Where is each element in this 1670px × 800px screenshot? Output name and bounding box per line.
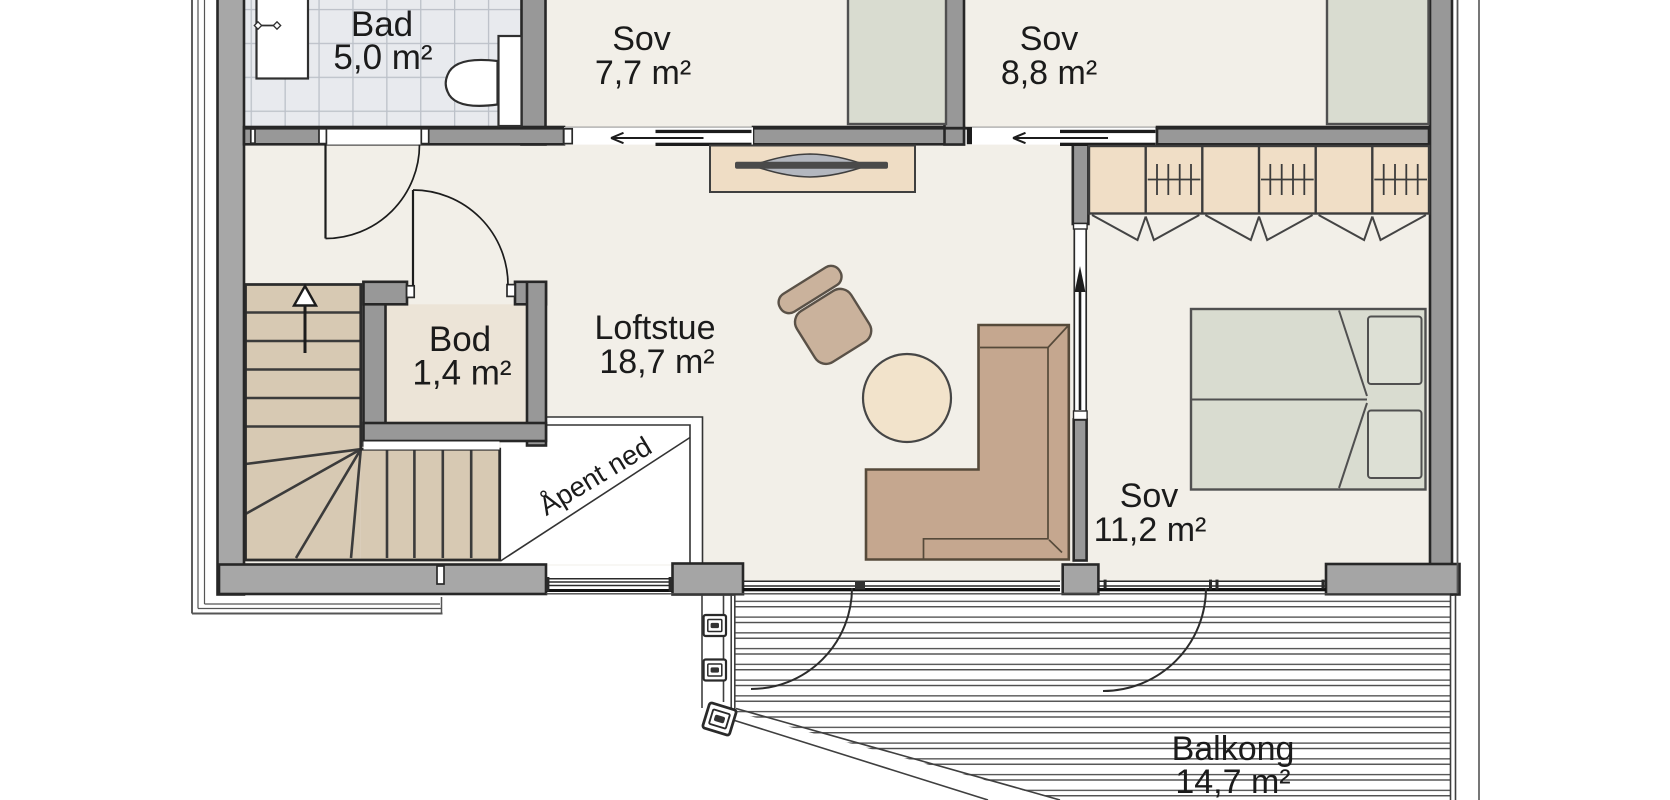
svg-text:7,7 m²: 7,7 m²: [595, 54, 691, 92]
svg-text:8,8 m²: 8,8 m²: [1001, 54, 1097, 92]
svg-text:5,0 m²: 5,0 m²: [333, 38, 432, 77]
svg-text:Sov: Sov: [612, 20, 671, 58]
svg-text:11,2 m²: 11,2 m²: [1094, 511, 1207, 549]
svg-text:Sov: Sov: [1120, 477, 1179, 515]
svg-text:18,7 m²: 18,7 m²: [599, 343, 714, 381]
svg-text:1,4 m²: 1,4 m²: [412, 354, 511, 393]
svg-text:Sov: Sov: [1020, 20, 1079, 58]
svg-text:14,7 m²: 14,7 m²: [1175, 763, 1290, 800]
svg-text:Loftstue: Loftstue: [595, 309, 716, 347]
